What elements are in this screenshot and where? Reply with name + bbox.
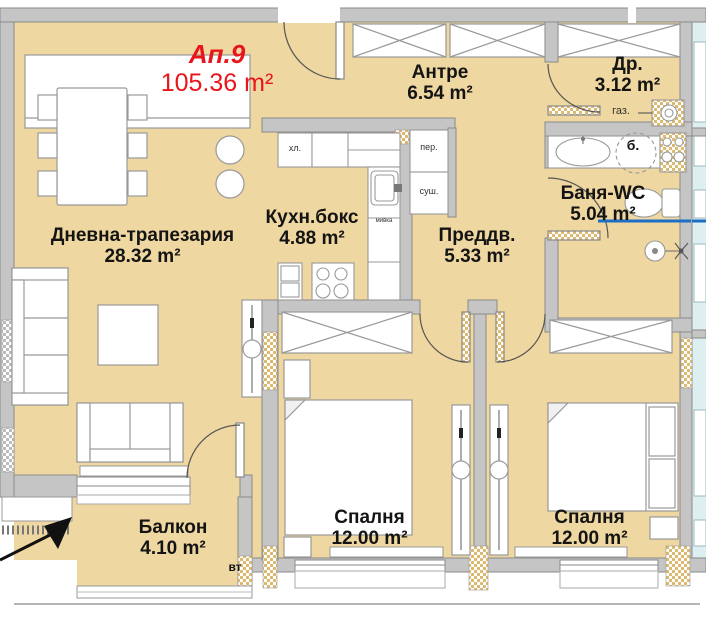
nightstand-bedroom1 (284, 360, 310, 398)
dining-chair (38, 133, 57, 158)
room-name: Спалня (302, 507, 437, 528)
wall-between-bedroom-doors (468, 300, 497, 314)
bedroom2-window-sill (560, 571, 658, 588)
room-area: 12.00 m² (302, 528, 437, 549)
room-name: Др. (575, 54, 680, 75)
room-name: Балкон (118, 517, 228, 538)
wardrobe-antre-1 (353, 24, 446, 57)
fridge-label: хл. (280, 143, 310, 153)
basin-faucet (581, 137, 585, 141)
neighbor-fixtures (692, 42, 706, 546)
wall-between-bedrooms (474, 314, 486, 560)
neighbor-fixture (694, 520, 706, 546)
room-label-dressing: Др. 3.12 m² (575, 54, 680, 97)
neighbor-fixture (694, 42, 706, 122)
room-name: Кухн.бокс (252, 207, 372, 228)
sofa-front (77, 403, 183, 462)
top-wall-joint (628, 7, 636, 23)
exterior-ledge (2, 497, 72, 521)
wardrobe-bedroom2 (550, 320, 672, 353)
pier-bedroom1-bottom (263, 546, 277, 588)
apartment-id: Ап.9 (147, 40, 287, 69)
vent-label: вт (222, 561, 248, 574)
stove (312, 263, 354, 300)
pillow (649, 459, 675, 508)
room-label-vestibule: Преддв. 5.33 m² (418, 225, 536, 268)
pier-center-bottom (469, 546, 488, 590)
room-name: Антре (385, 62, 495, 83)
apartment-area: 105.36 m² (147, 69, 287, 97)
room-label-living: Дневна-трапезария 28.32 m² (25, 225, 260, 268)
dryer-label: суш. (411, 186, 447, 196)
room-name: Спалня (522, 507, 657, 528)
pier-party-wall (681, 338, 692, 388)
bedroom1-window-sill (295, 571, 445, 588)
room-label-kitchen: Кухн.бокс 4.88 m² (252, 207, 372, 250)
boiler-label: б. (618, 138, 648, 154)
room-area: 12.00 m² (522, 528, 657, 549)
gas-heater-bath (660, 133, 686, 172)
dining-table (57, 88, 127, 205)
room-name: Дневна-трапезария (25, 225, 260, 246)
base-cabinet (278, 263, 302, 300)
room-label-antre: Антре 6.54 m² (385, 62, 495, 105)
sofa-left (12, 268, 68, 405)
radiator-bedroom2 (490, 405, 508, 555)
room-area: 4.88 m² (252, 228, 372, 249)
radiator-bedroom1 (452, 405, 470, 555)
stool (216, 170, 244, 198)
dining-chair (38, 171, 57, 196)
living-radiator (80, 466, 188, 476)
pier-right-bottom (666, 546, 690, 586)
sink-label: мивка (369, 218, 399, 225)
neighbor-fixture (694, 410, 706, 496)
room-name: Преддв. (418, 225, 536, 246)
dining-chair (38, 95, 57, 120)
room-area: 3.12 m² (575, 75, 680, 96)
room-name: Баня-WC (538, 183, 668, 204)
room-area: 28.32 m² (25, 246, 260, 267)
neighbor-wall-stub (692, 330, 706, 338)
dining-chair (128, 133, 147, 158)
room-label-bath: Баня-WC 5.04 m² (538, 183, 668, 226)
room-area: 5.04 m² (538, 204, 668, 225)
neighbor-wall-stub (692, 128, 706, 136)
wall-left (0, 22, 14, 497)
stool (216, 136, 244, 164)
pillow (649, 407, 675, 456)
room-label-balcony: Балкон 4.10 m² (118, 517, 228, 560)
entrance-opening (278, 7, 340, 23)
wall-living-bottom-right (240, 475, 252, 497)
floor-plan: Ап.9 105.36 m² Дневна-трапезария 28.32 m… (0, 0, 706, 636)
radiator-living (242, 300, 262, 397)
gas-label: газ. (602, 105, 640, 117)
living-window-sill (77, 495, 190, 504)
room-label-bedroom2: Спалня 12.00 m² (522, 507, 657, 550)
wall-bath-left-bottom (545, 238, 558, 332)
wardrobe-antre-2 (450, 24, 545, 57)
neighbor-fixture (694, 190, 706, 218)
pier-bedroom1-wall (263, 332, 277, 390)
dining-chair (128, 171, 147, 196)
wardrobe-bedroom1 (282, 312, 412, 353)
coffee-table (98, 305, 158, 365)
room-area: 4.10 m² (118, 538, 228, 559)
room-area: 5.33 m² (418, 246, 536, 267)
wall-top (0, 8, 706, 22)
room-area: 6.54 m² (385, 83, 495, 104)
neighbor-fixture (694, 136, 706, 166)
wall-living-bottom-left (14, 475, 77, 497)
neighbor-fixture (694, 244, 706, 302)
apartment-title: Ап.9 105.36 m² (147, 40, 287, 97)
wardrobe-dressing (558, 24, 680, 57)
wall-antre-dressing (545, 22, 558, 62)
kitchen-sink (371, 171, 402, 205)
washer-label: пер. (411, 142, 447, 152)
bed-bedroom2 (548, 403, 678, 511)
dining-chair (128, 95, 147, 120)
pier-left-2 (2, 428, 14, 472)
wall-niche-right (448, 128, 456, 217)
room-label-bedroom1: Спалня 12.00 m² (302, 507, 437, 550)
